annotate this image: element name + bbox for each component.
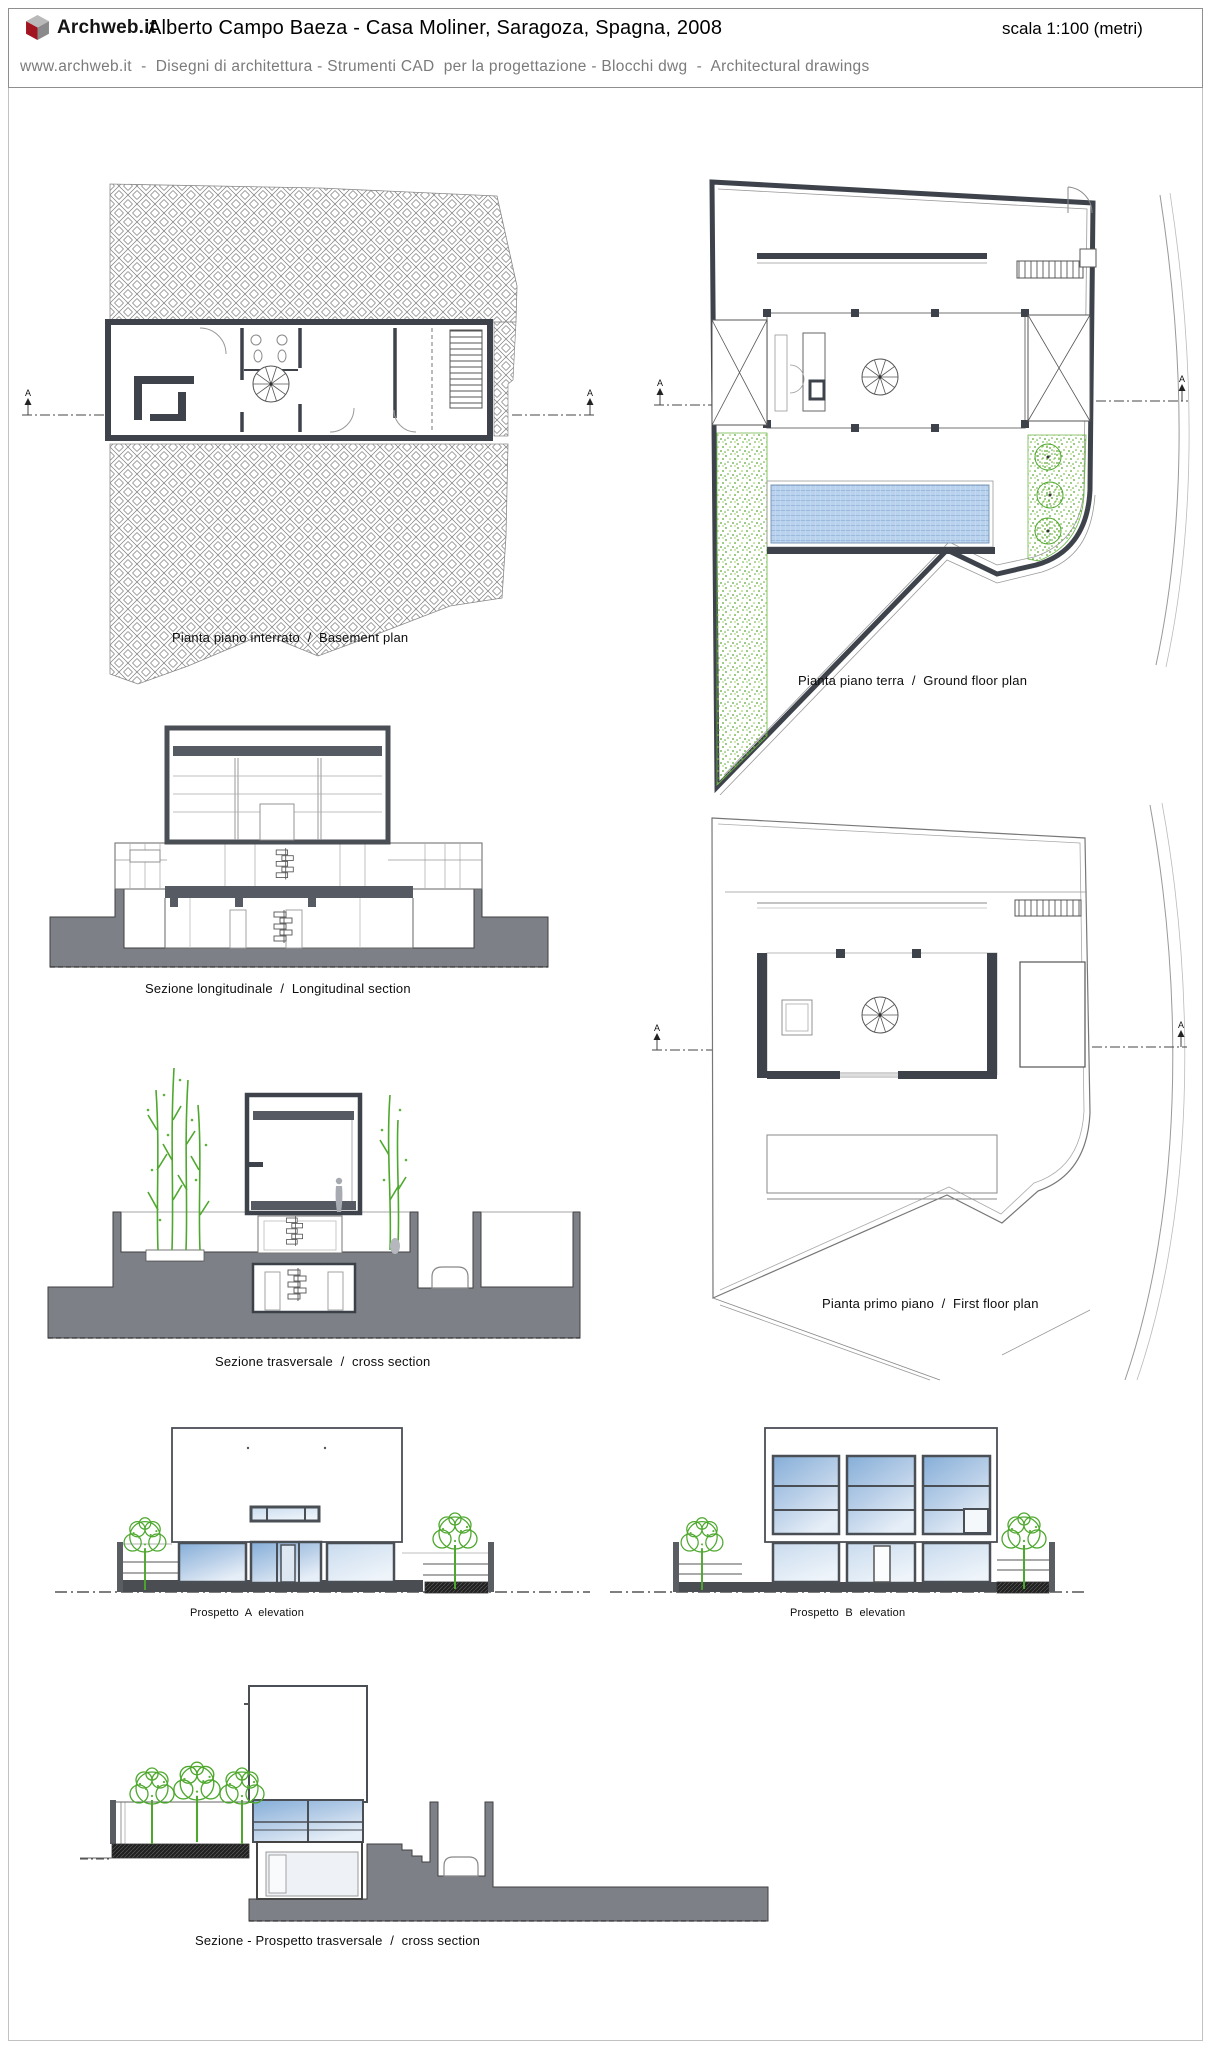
spiral-stair-icon xyxy=(253,366,289,402)
basement-level xyxy=(165,898,413,948)
person-silhouette xyxy=(336,1178,343,1212)
window xyxy=(327,1543,394,1582)
slit-window xyxy=(251,1507,319,1521)
ground-floor-plan-drawing: A A xyxy=(640,165,1210,715)
street-curve xyxy=(1125,805,1173,1380)
entry-stair xyxy=(1017,261,1083,278)
floor-slab xyxy=(165,886,413,898)
tree-icon xyxy=(1035,444,1061,470)
spiral-stair-icon xyxy=(862,359,898,395)
tower xyxy=(244,1686,367,1802)
middle-room xyxy=(258,1216,342,1253)
svg-text:A: A xyxy=(25,388,31,398)
door xyxy=(281,1545,295,1582)
basement-room xyxy=(253,1264,355,1312)
logo-text: Archweb.it xyxy=(57,17,156,39)
planter xyxy=(146,1250,204,1261)
upper-window xyxy=(923,1456,990,1534)
upper-box xyxy=(167,728,388,842)
svg-text:A: A xyxy=(1178,1020,1184,1030)
entrance-window xyxy=(847,1543,915,1583)
door xyxy=(874,1546,890,1582)
cross-section-drawing xyxy=(40,1050,600,1370)
drawing-sheet-page: Archweb.it Alberto Campo Baeza - Casa Mo… xyxy=(0,0,1210,2048)
left-terrace xyxy=(80,1800,249,1858)
tree-icon xyxy=(124,1518,166,1590)
skylight-left xyxy=(712,320,767,425)
elevation-b-drawing xyxy=(610,1390,1090,1605)
car-outline xyxy=(432,1267,468,1288)
building-outline xyxy=(108,322,490,438)
archweb-logo: Archweb.it xyxy=(26,15,156,40)
elevation-a-drawing xyxy=(55,1390,595,1605)
tall-trees-left xyxy=(148,1068,209,1250)
caption-section-elevation: Sezione - Prospetto trasversale / cross … xyxy=(195,1933,480,1948)
shrub xyxy=(390,1238,400,1254)
section-elevation-drawing xyxy=(80,1650,780,1940)
tree-icon xyxy=(130,1768,174,1844)
stair-ladder xyxy=(450,330,482,408)
first-floor-plan-drawing: A A xyxy=(640,795,1210,1380)
terrace-box xyxy=(1020,962,1085,1067)
caption-elevation-b: Prospetto B elevation xyxy=(790,1607,905,1619)
street-curve xyxy=(1156,195,1179,665)
garden-left xyxy=(717,433,767,785)
longitudinal-section-drawing xyxy=(30,700,570,1000)
upper-volume xyxy=(172,1428,402,1542)
basement-plan-drawing: A A xyxy=(20,168,620,638)
stair-ladder xyxy=(1015,900,1081,916)
swimming-pool xyxy=(767,481,995,554)
entrance-window xyxy=(251,1542,321,1583)
page-title: Alberto Campo Baeza - Casa Moliner, Sara… xyxy=(148,17,722,40)
caption-longitudinal-section: Sezione longitudinale / Longitudinal sec… xyxy=(145,981,411,996)
svg-text:A: A xyxy=(587,388,593,398)
window xyxy=(179,1543,246,1582)
tree-icon xyxy=(1037,482,1063,508)
caption-first-floor-plan: Pianta primo piano / First floor plan xyxy=(822,1296,1039,1311)
upper-room xyxy=(757,949,997,1079)
car-outline xyxy=(444,1857,478,1876)
site-subtitle: www.archweb.it - Disegni di architettura… xyxy=(20,58,870,76)
middle-level xyxy=(115,843,482,889)
archweb-cube-icon xyxy=(26,15,49,40)
spiral-stair-icon xyxy=(862,997,898,1033)
svg-text:A: A xyxy=(657,378,663,388)
window xyxy=(773,1543,839,1582)
window-band xyxy=(253,1800,363,1842)
tall-tree-right xyxy=(380,1095,406,1250)
svg-text:A: A xyxy=(1179,374,1185,384)
tree-icon xyxy=(1002,1513,1046,1589)
scale-note: scala 1:100 (metri) xyxy=(1002,19,1143,39)
caption-elevation-a: Prospetto A elevation xyxy=(190,1607,304,1619)
caption-basement-plan: Pianta piano interrato / Basement plan xyxy=(172,630,408,645)
caption-cross-section: Sezione trasversale / cross section xyxy=(215,1354,431,1369)
lower-room xyxy=(257,1842,362,1899)
tower xyxy=(247,1095,360,1213)
skylight-right xyxy=(1028,315,1090,421)
base-plinth xyxy=(679,1582,997,1592)
window xyxy=(923,1543,990,1582)
upper-window xyxy=(847,1456,915,1534)
planting-strip xyxy=(112,1844,249,1858)
svg-text:A: A xyxy=(654,1023,660,1033)
upper-window xyxy=(773,1456,839,1534)
tree-icon xyxy=(433,1513,477,1589)
caption-ground-floor-plan: Pianta piano terra / Ground floor plan xyxy=(798,673,1027,688)
tree-icon xyxy=(1035,518,1061,544)
tree-icon xyxy=(681,1518,723,1590)
planter-hatch xyxy=(425,1582,488,1593)
